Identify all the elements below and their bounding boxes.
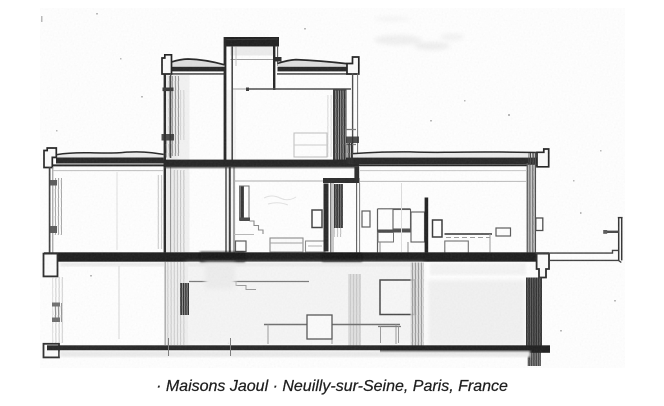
svg-text:· Maisons Jaoul · Neuilly-sur-: · Maisons Jaoul · Neuilly-sur-Seine, Par… [156,378,508,395]
